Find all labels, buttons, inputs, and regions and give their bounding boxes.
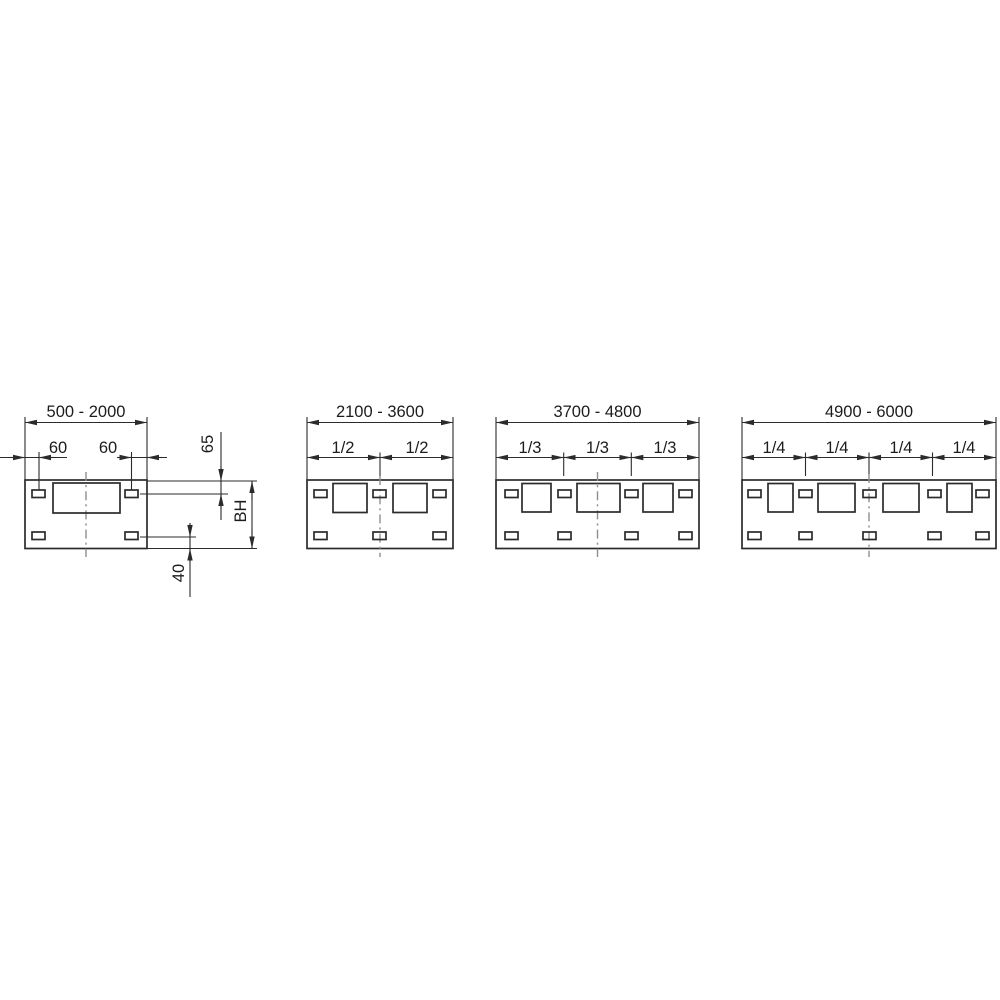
panel-4-fraction-label: 1/4 <box>890 439 913 457</box>
technical-drawing: 500 - 2000 60 60 65 BH 40 2100 - 3600 1/… <box>0 0 1000 1000</box>
panel-2: 2100 - 3600 1/2 1/2 <box>307 403 453 557</box>
panel-1-top-offset-label: 65 <box>199 435 217 453</box>
panel-2-slot <box>314 532 327 540</box>
panel-4-slot <box>928 490 941 498</box>
dimension-diagram: 500 - 2000 60 60 65 BH 40 2100 - 3600 1/… <box>0 0 1000 1000</box>
panel-4-window <box>818 484 855 513</box>
panel-3: 3700 - 4800 1/3 1/3 1/3 <box>496 403 699 557</box>
panel-4-window <box>947 484 972 513</box>
panel-4-slot <box>799 532 812 540</box>
panel-2-slot <box>433 532 446 540</box>
panel-3-window <box>577 484 620 513</box>
panel-1-slot <box>32 532 45 540</box>
panel-2-dimension-lines <box>307 417 453 480</box>
panel-1-left-offset-label: 60 <box>49 439 67 457</box>
panel-1-bottom-offset-label: 40 <box>170 564 188 582</box>
panel-3-range-label: 3700 - 4800 <box>553 403 641 421</box>
panel-3-slot <box>505 490 518 498</box>
panel-4-fraction-label: 1/4 <box>826 439 849 457</box>
panel-2-fraction-label: 1/2 <box>406 439 429 457</box>
panel-3-window <box>643 484 673 513</box>
panel-4: 4900 - 6000 1/4 1/4 1/4 1/4 <box>742 403 996 557</box>
panel-1-slot <box>32 490 45 498</box>
panel-2-slot <box>433 490 446 498</box>
panel-4-fraction-label: 1/4 <box>953 439 976 457</box>
panel-2-window <box>393 484 427 513</box>
panel-1-range-label: 500 - 2000 <box>47 403 126 421</box>
panel-1-height-label: BH <box>232 500 250 523</box>
panel-3-slot <box>679 490 692 498</box>
panel-3-fraction-label: 1/3 <box>586 439 609 457</box>
panel-4-slot <box>799 490 812 498</box>
panel-3-slot <box>679 532 692 540</box>
panel-1-dimension-lines <box>0 417 257 597</box>
panel-4-range-label: 4900 - 6000 <box>825 403 913 421</box>
panel-3-fraction-label: 1/3 <box>519 439 542 457</box>
panel-3-fraction-label: 1/3 <box>654 439 677 457</box>
panel-3-slot <box>558 490 571 498</box>
panel-2-range-label: 2100 - 3600 <box>336 403 424 421</box>
panel-1-slot <box>125 490 138 498</box>
panel-2-slot <box>314 490 327 498</box>
panel-4-slot <box>976 532 989 540</box>
panel-2-window <box>333 484 367 513</box>
panel-3-slot <box>558 532 571 540</box>
panel-4-window <box>768 484 793 513</box>
panel-3-window <box>522 484 551 513</box>
panel-4-window <box>883 484 919 513</box>
panel-4-slot <box>976 490 989 498</box>
panel-3-slot <box>625 532 638 540</box>
panel-3-slot <box>625 490 638 498</box>
panel-1-right-offset-label: 60 <box>99 439 117 457</box>
panel-3-slot <box>505 532 518 540</box>
panel-2-fraction-label: 1/2 <box>332 439 355 457</box>
panel-4-slot <box>928 532 941 540</box>
panel-1: 500 - 2000 60 60 65 BH 40 <box>0 403 257 597</box>
panel-4-slot <box>748 532 761 540</box>
panel-1-slot <box>125 532 138 540</box>
panel-4-fraction-label: 1/4 <box>763 439 786 457</box>
panel-4-slot <box>748 490 761 498</box>
